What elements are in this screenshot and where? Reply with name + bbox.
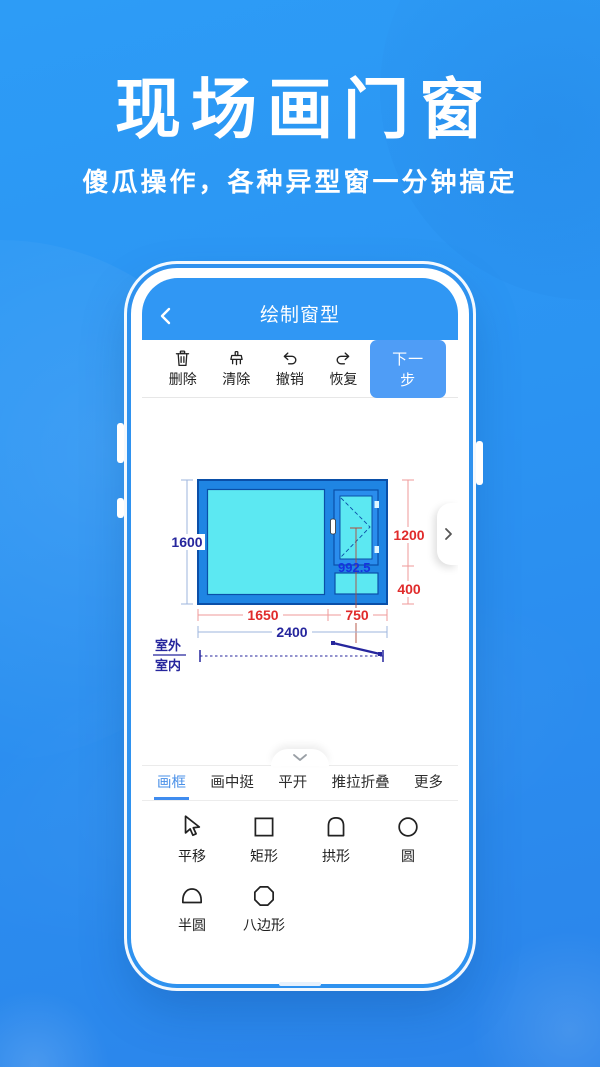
arch-icon [322,813,350,841]
window-handle[interactable] [331,519,336,534]
undo-button[interactable]: 撤销 [263,349,317,389]
brush-icon [227,349,246,368]
chevron-right-icon [443,527,453,541]
panel-collapse-handle[interactable] [271,749,329,766]
app-header: 绘制窗型 [142,278,458,340]
undo-arrow-icon [280,349,299,368]
chevron-down-icon [292,753,308,762]
tool-label: 圆 [401,846,415,866]
octagon-icon [250,882,278,910]
orientation-line [200,650,383,662]
dim-bottom-height: 400 [397,581,421,597]
cursor-icon [178,813,206,841]
tool-semicircle[interactable]: 半圆 [156,882,228,935]
clear-button[interactable]: 清除 [210,349,264,389]
clear-label: 清除 [222,369,250,389]
dim-right-width: 750 [345,607,369,623]
tool-label: 拱形 [322,846,350,866]
sash-opening-value: 992.5 [338,560,371,575]
trash-icon [173,349,192,368]
background-swirl [470,930,600,1067]
tool-octagon[interactable]: 八边形 [228,882,300,935]
poster-subtitle: 傻瓜操作，各种异型窗一分钟搞定 [0,162,600,199]
rectangle-icon [250,813,278,841]
delete-button[interactable]: 删除 [156,349,210,389]
hinge-mark [375,546,380,553]
indoor-label: 室内 [155,658,181,673]
shape-tools: 平移 矩形 拱形 [142,801,458,935]
category-tabs: 画框 画中挺 平开 推拉折叠 更多 [142,766,458,801]
hinge-mark [375,501,380,508]
dim-left-width: 1650 [247,607,278,623]
tab-sliding-folding[interactable]: 推拉折叠 [329,766,393,800]
tab-more[interactable]: 更多 [411,766,446,800]
redo-label: 恢复 [329,369,357,389]
semicircle-icon [178,882,206,910]
dim-total-width: 2400 [276,624,307,640]
charging-port [279,982,321,986]
redo-arrow-icon [334,349,353,368]
redo-button[interactable]: 恢复 [317,349,371,389]
app-screen: 绘制窗型 删除 [142,278,458,974]
back-button[interactable] [158,306,178,326]
dim-sash-height: 1200 [393,527,424,543]
tool-rectangle[interactable]: 矩形 [228,813,300,866]
tool-label: 平移 [178,846,206,866]
background-swirl [0,990,110,1067]
delete-label: 删除 [169,369,197,389]
toolbar: 删除 清除 [142,340,458,398]
next-step-button[interactable]: 下一步 [370,340,446,398]
circle-icon [394,813,422,841]
tab-casement[interactable]: 平开 [275,766,310,800]
tool-pan[interactable]: 平移 [156,813,228,866]
tab-mullion[interactable]: 画中挺 [207,766,257,800]
shape-panel: 画框 画中挺 平开 推拉折叠 更多 平移 [142,765,458,974]
left-glass-pane[interactable] [208,490,325,595]
volume-button [117,498,124,518]
dim-total-height: 1600 [171,534,202,550]
bottom-glass-pane[interactable] [335,573,378,594]
swing-direction-arrow [331,641,382,656]
window-diagram[interactable]: 992.5 1600 [150,431,458,691]
outdoor-label: 室外 [155,638,181,653]
side-drawer-handle[interactable] [437,503,458,565]
chevron-left-icon [158,307,172,325]
drawing-canvas[interactable]: 992.5 1600 [142,398,458,765]
page-title: 绘制窗型 [142,300,458,340]
tool-label: 半圆 [178,915,206,935]
power-button [476,441,483,485]
undo-label: 撤销 [276,369,304,389]
poster-title: 现场画门窗 [0,56,600,152]
promo-poster: 现场画门窗 傻瓜操作，各种异型窗一分钟搞定 绘制窗型 [0,0,600,1067]
volume-button [117,423,124,463]
tab-frame[interactable]: 画框 [154,766,189,800]
tool-label: 八边形 [243,915,285,935]
phone-mockup: 绘制窗型 删除 [131,268,469,984]
tool-label: 矩形 [250,846,278,866]
tool-circle[interactable]: 圆 [372,813,444,866]
tool-arch[interactable]: 拱形 [300,813,372,866]
